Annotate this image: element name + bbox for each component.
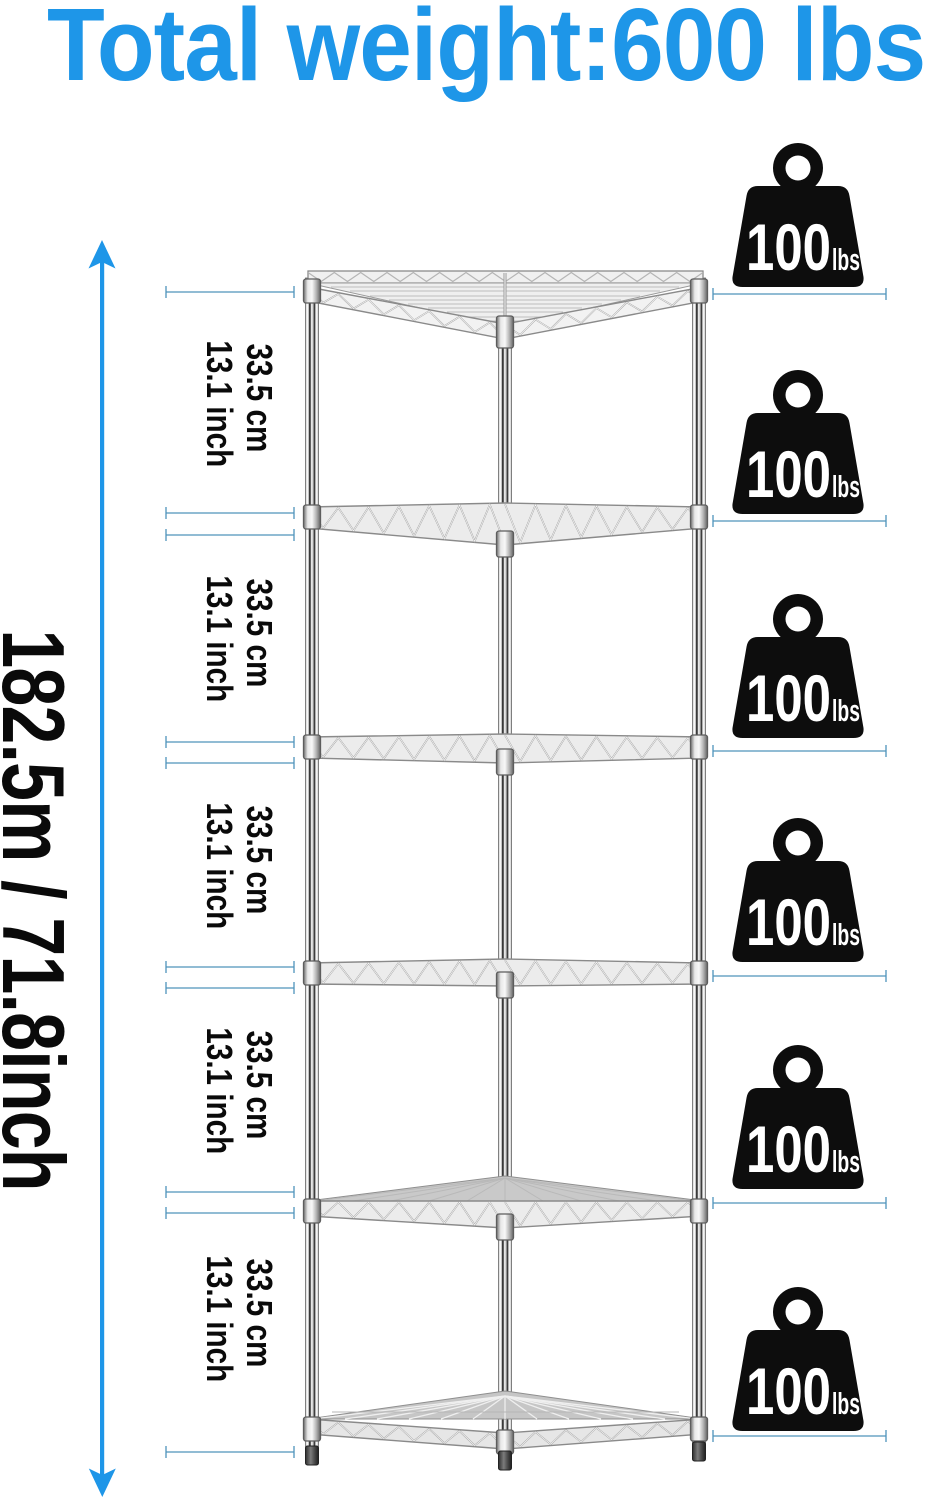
svg-text:lbs: lbs [832,242,860,277]
svg-text:100: 100 [746,885,831,959]
svg-text:100: 100 [746,1354,831,1428]
svg-text:lbs: lbs [832,693,860,728]
svg-text:100: 100 [746,437,831,511]
svg-text:lbs: lbs [832,1386,860,1421]
svg-text:100: 100 [746,210,831,284]
svg-text:lbs: lbs [832,917,860,952]
svg-text:lbs: lbs [832,1144,860,1179]
svg-text:100: 100 [746,661,831,735]
svg-text:lbs: lbs [832,469,860,504]
svg-text:100: 100 [746,1112,831,1186]
